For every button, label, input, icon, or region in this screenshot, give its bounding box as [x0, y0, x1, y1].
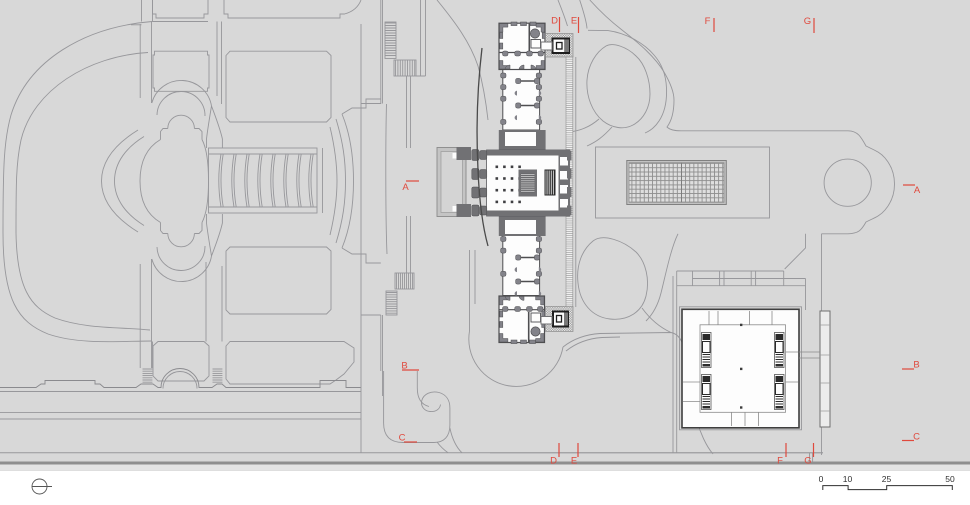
svg-text:C: C [913, 432, 920, 443]
svg-text:D: D [551, 16, 558, 27]
svg-text:25: 25 [882, 474, 892, 484]
svg-text:10: 10 [843, 474, 853, 484]
svg-text:F: F [777, 456, 783, 467]
svg-text:0: 0 [819, 474, 824, 484]
svg-text:B: B [913, 360, 919, 371]
svg-text:G: G [804, 16, 811, 27]
svg-text:G: G [804, 456, 811, 467]
svg-text:50: 50 [945, 474, 955, 484]
svg-text:E: E [571, 456, 577, 467]
svg-text:D: D [550, 456, 557, 467]
svg-text:A: A [402, 182, 409, 193]
svg-text:F: F [705, 16, 711, 27]
svg-text:A: A [914, 185, 921, 196]
svg-text:E: E [571, 16, 577, 27]
